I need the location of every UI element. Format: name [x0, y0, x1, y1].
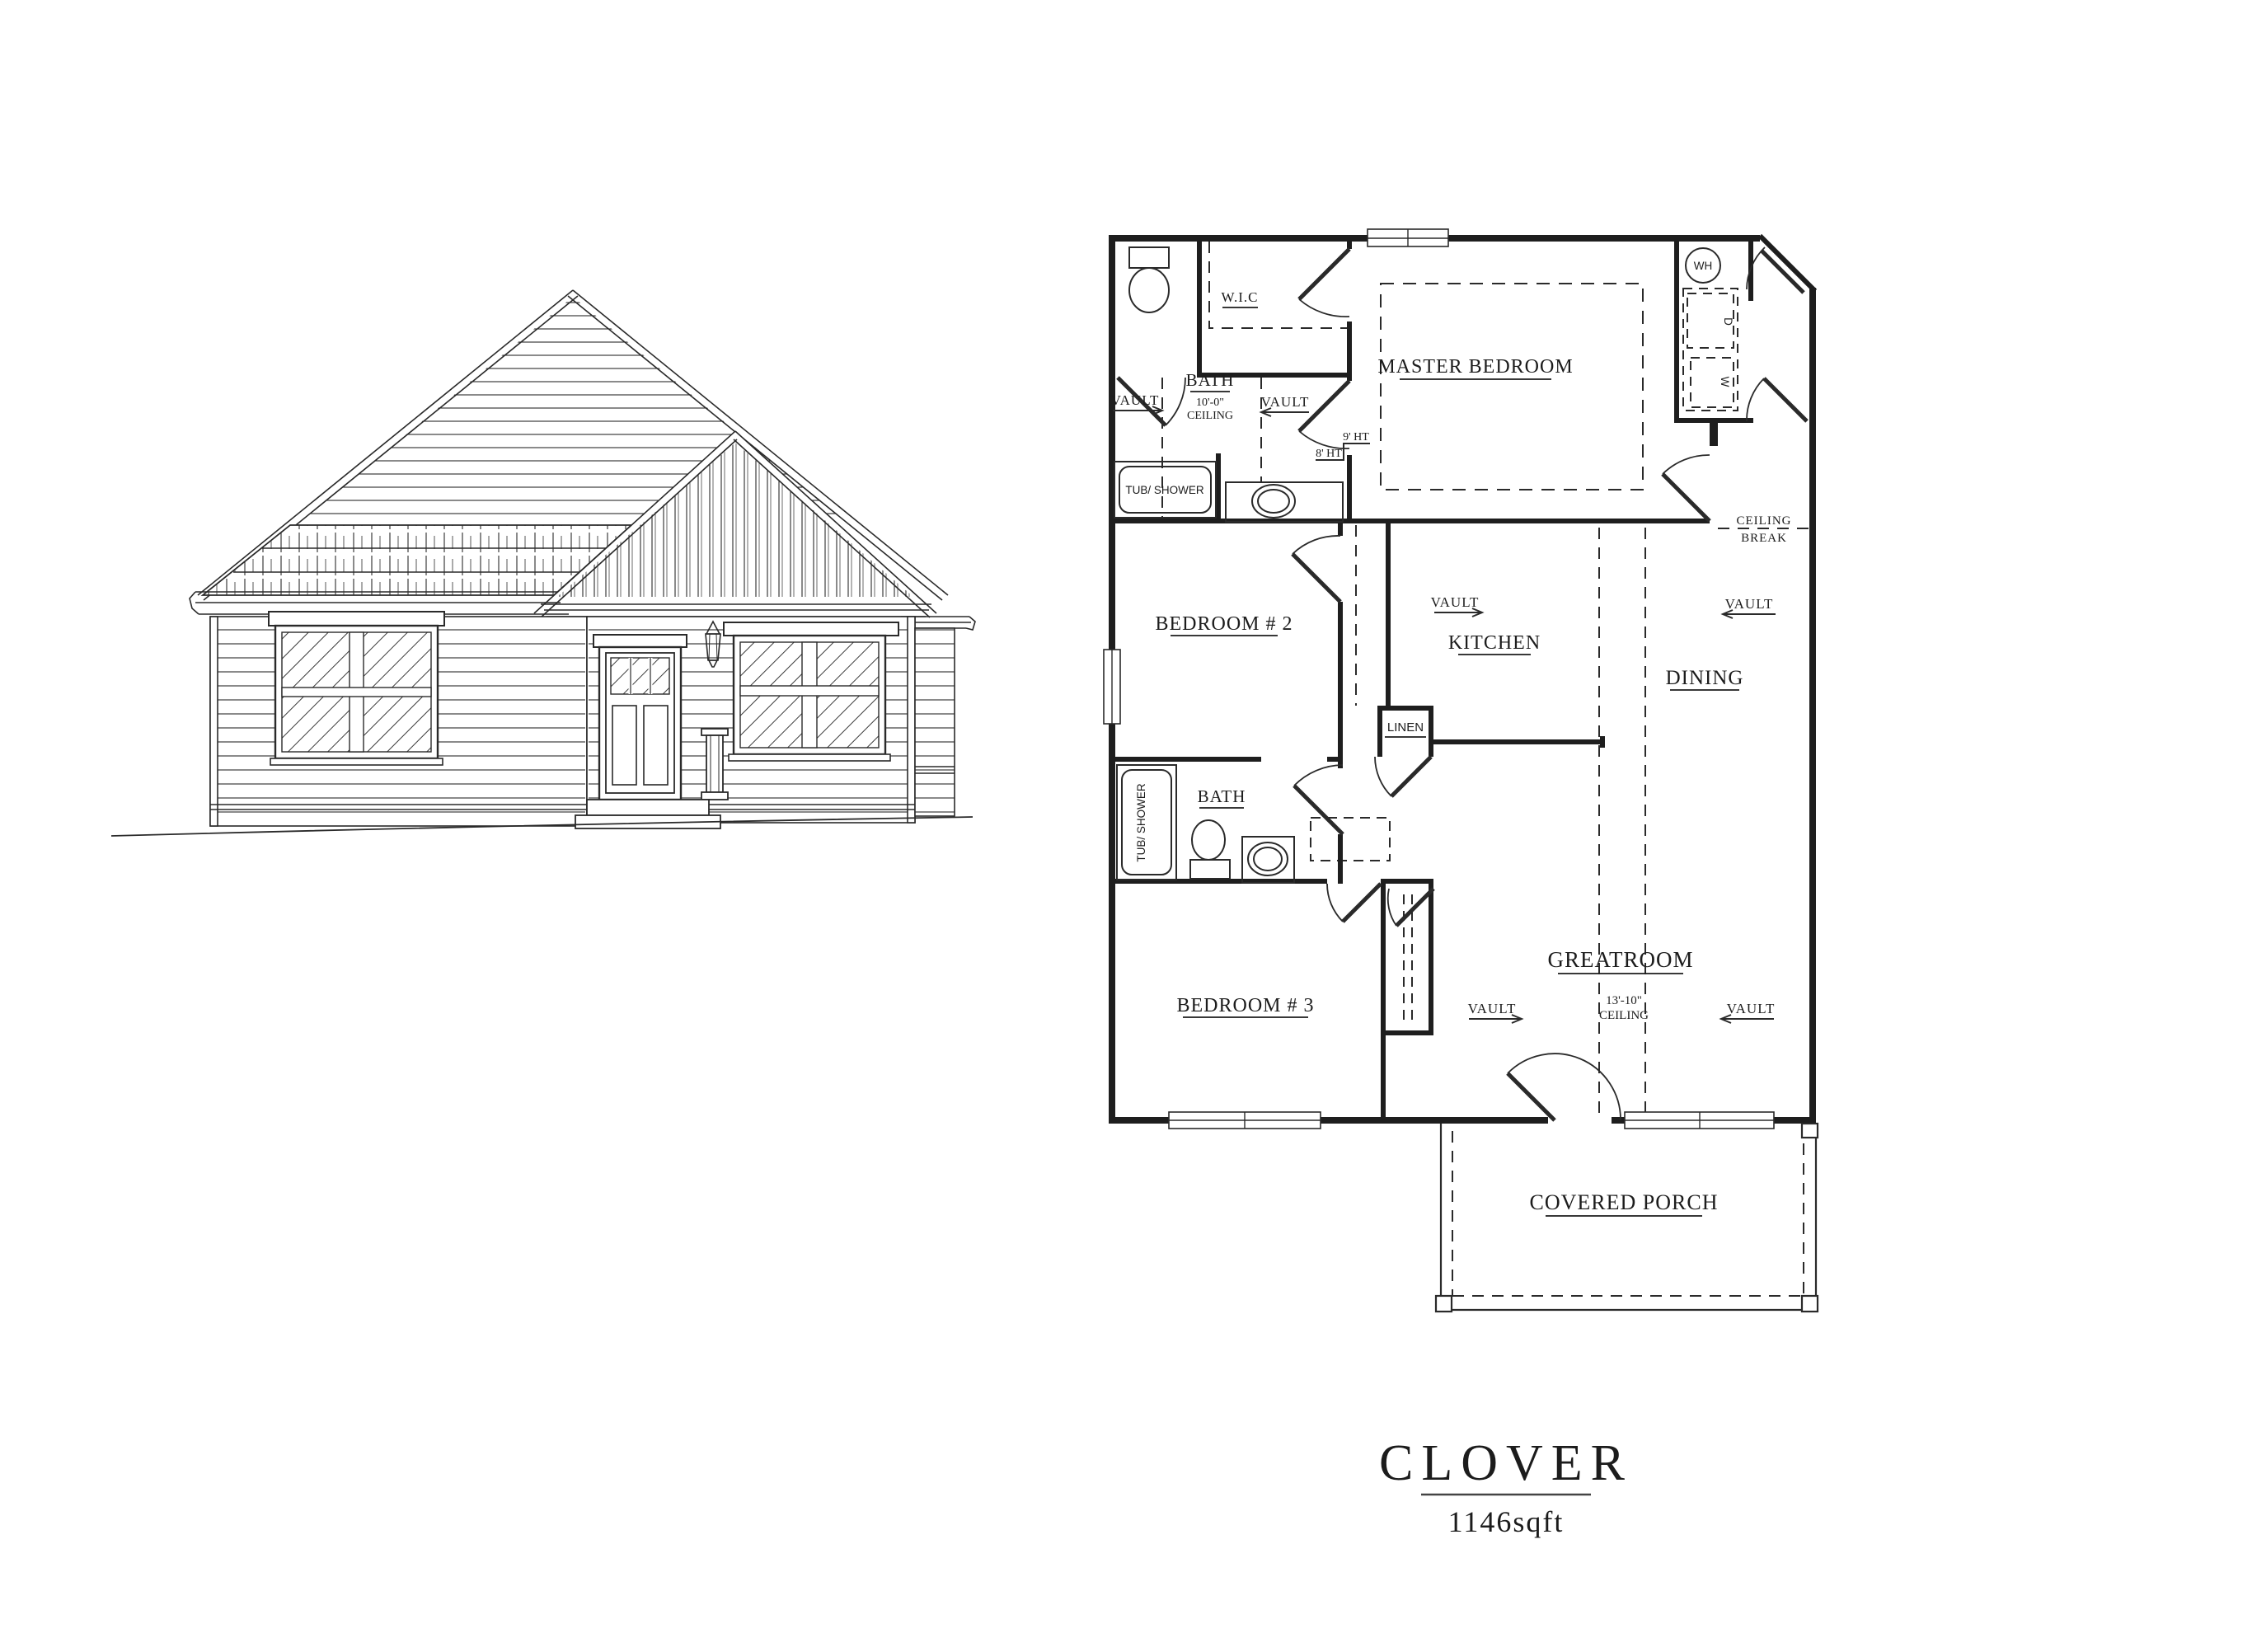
vault-arrows [1113, 406, 1776, 1023]
label-vault-kitchen: VAULT [1431, 594, 1480, 610]
label-washer: W [1719, 377, 1731, 387]
right-window [724, 622, 898, 761]
plan-area: 1146sqft [1448, 1505, 1565, 1538]
label-linen: LINEN [1387, 720, 1424, 734]
floor-plan: W.I.C BATH 10'-0" CEILING VAULT VAULT MA… [1104, 229, 1818, 1312]
left-window [269, 612, 444, 765]
chamfer-corner [1760, 236, 1815, 291]
label-vault-dining: VAULT [1725, 596, 1774, 612]
label-vault-gr-right: VAULT [1727, 1001, 1776, 1016]
front-door [593, 635, 687, 800]
house-elevation [111, 290, 975, 836]
label-tub-shower-master: TUB/ SHOWER [1125, 484, 1204, 496]
label-dryer: D [1722, 317, 1734, 326]
label-vault-gr-left: VAULT [1468, 1001, 1517, 1016]
label-greatroom: GREATROOM [1547, 947, 1693, 972]
label-vault-bath-right: VAULT [1261, 394, 1310, 410]
label-master-bedroom: MASTER BEDROOM [1377, 356, 1573, 378]
label-vault-bath-left: VAULT [1111, 392, 1160, 408]
label-tub-shower-2: TUB/ SHOWER [1135, 783, 1147, 862]
label-bath-2: BATH [1198, 786, 1246, 806]
title-block: CLOVER 1146sqft [1379, 1435, 1633, 1538]
blueprint-page: W.I.C BATH 10'-0" CEILING VAULT VAULT MA… [0, 0, 2252, 1652]
label-water-heater: WH [1694, 260, 1713, 272]
label-dining: DINING [1666, 667, 1744, 689]
label-ceiling-break-1: CEILING [1737, 514, 1792, 528]
label-gr-ceiling-word: CEILING [1599, 1009, 1649, 1022]
plan-title: CLOVER [1379, 1435, 1633, 1491]
label-bedroom-2: BEDROOM # 2 [1155, 613, 1293, 635]
label-bedroom-3: BEDROOM # 3 [1176, 995, 1314, 1016]
label-wic: W.I.C [1222, 289, 1259, 305]
label-covered-porch: COVERED PORCH [1530, 1190, 1719, 1214]
label-bath-ceiling-word: CEILING [1187, 410, 1233, 422]
label-9ht: 9' HT [1343, 431, 1369, 444]
label-kitchen: KITCHEN [1448, 632, 1541, 654]
porch [1436, 1124, 1818, 1312]
drawing-sheet: W.I.C BATH 10'-0" CEILING VAULT VAULT MA… [0, 0, 2252, 1652]
label-gr-ceiling-height: 13'-10" [1606, 994, 1642, 1007]
label-bath-master: BATH [1186, 370, 1235, 390]
label-ceiling-break-2: BREAK [1741, 532, 1787, 545]
label-bath-ceiling-height: 10'-0" [1196, 397, 1224, 409]
label-8ht: 8' HT [1316, 448, 1342, 460]
